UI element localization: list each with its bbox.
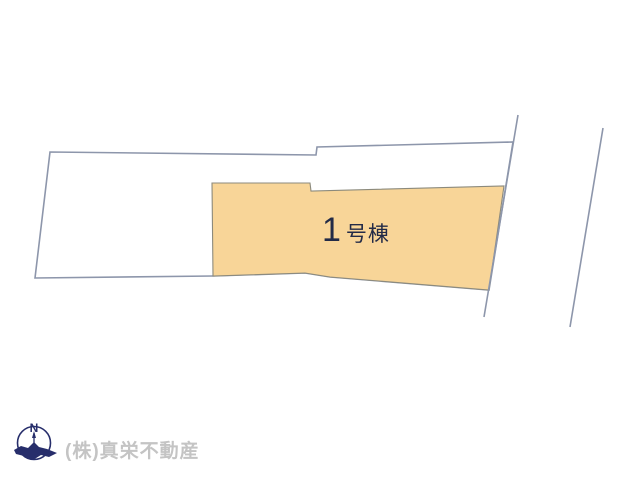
building-label: 1号棟	[322, 213, 390, 247]
site-plan-canvas	[0, 0, 640, 480]
building-label-suffix: 号棟	[346, 224, 390, 245]
building-label-number: 1	[322, 213, 341, 247]
footer: N (株)真栄不動産	[13, 419, 200, 467]
company-watermark: (株)真栄不動産	[65, 442, 200, 467]
compass-north-icon: N	[13, 419, 59, 467]
site-plan-page: 1号棟 N (株)真栄不動産	[0, 0, 640, 480]
detached-boundary-line	[570, 128, 603, 327]
